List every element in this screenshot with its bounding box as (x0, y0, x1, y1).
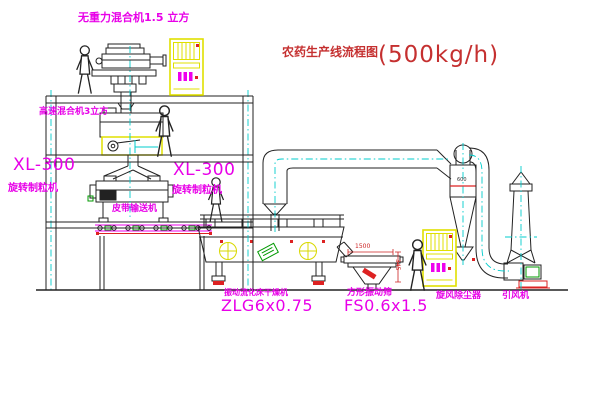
label-cyclone: 旋风除尘器 (436, 292, 481, 301)
title-text: 农药生产线流程图 (282, 45, 378, 59)
flow-diagram: 农药生产线流程图(500kg/h) 无重力混合机1.5 立方 高速混合机3立方 … (0, 0, 600, 403)
person-figure-second-floor (156, 106, 173, 157)
dimension-sieve-height: 345 (394, 259, 400, 270)
label-granulator-center-name: 旋转制粒机 (172, 186, 222, 196)
label-fan: 引风机 (502, 292, 529, 301)
control-cabinet-bottom (423, 230, 456, 286)
dimension-sieve-length: 1500 (355, 244, 370, 250)
centerlines (51, 46, 537, 292)
belt-conveyor (95, 225, 212, 235)
title-capacity: (500kg/h) (378, 42, 499, 68)
label-granulator-left-model: XL-300 (13, 157, 75, 174)
label-belt-conveyor: 皮带输送机 (112, 205, 157, 214)
label-sieve-model: FS0.6x1.5 (344, 298, 428, 314)
label-dryer-model: ZLG6x0.75 (221, 298, 313, 314)
person-figure-top-floor (77, 46, 93, 94)
label-granulator-center-model: XL-300 (173, 162, 235, 179)
label-granulator-left-name: 旋转制粒机 (8, 184, 58, 194)
dimension-cyclone-band: 600 (457, 178, 467, 183)
high-speed-mixer (100, 108, 163, 181)
control-cabinet-top (170, 39, 203, 95)
stack-and-fan (504, 172, 550, 288)
label-high-speed-mixer: 高速混合机3立方 (39, 108, 108, 117)
fluid-bed-dryer (198, 215, 353, 285)
page-title: 农药生产线流程图(500kg/h) (282, 42, 499, 68)
rotary-granulator (88, 181, 173, 222)
label-gravity-free-mixer: 无重力混合机1.5 立方 (78, 12, 189, 23)
